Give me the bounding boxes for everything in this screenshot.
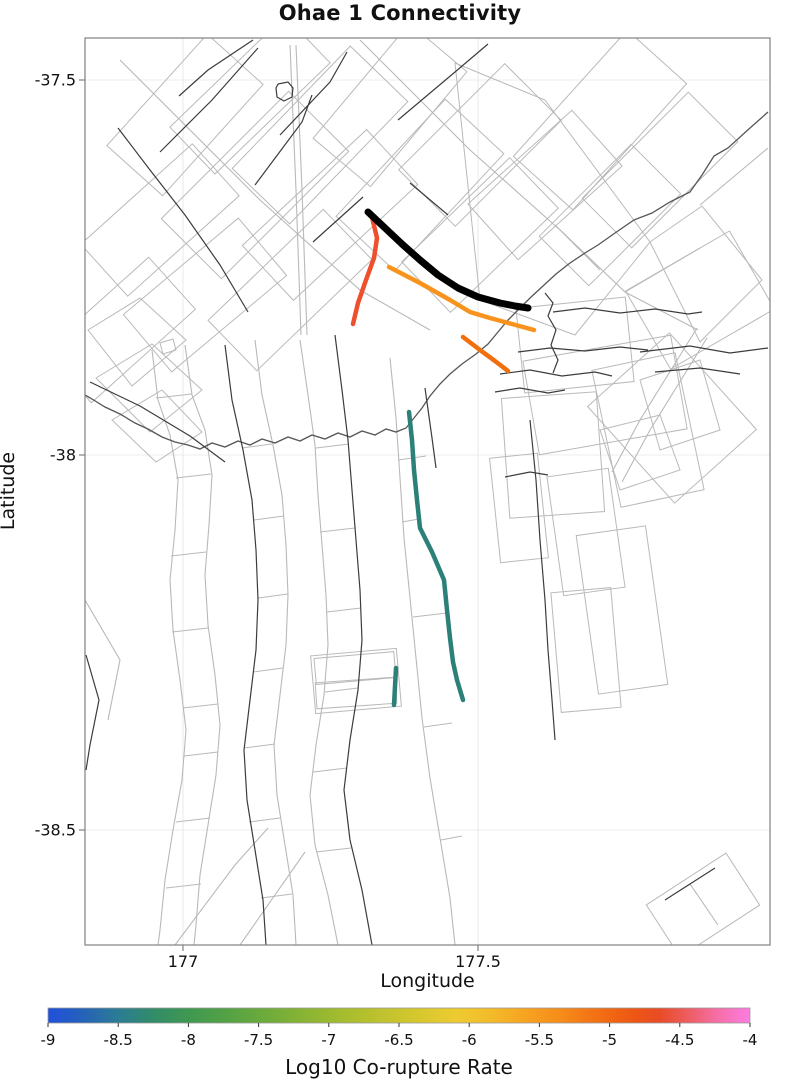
fault-segment-rung [253, 668, 283, 672]
fault-segment-rung [261, 894, 292, 898]
fault-segment-rung [172, 628, 208, 632]
fault-trace-orange-upper [389, 267, 534, 330]
fault-segment-rung [327, 608, 361, 612]
fault-trace-dark [553, 308, 702, 314]
fault-trace-teal-short [394, 668, 396, 705]
fault-surface-outline [208, 209, 372, 370]
fault-trace-light [700, 148, 768, 205]
fault-segment-rung [325, 688, 358, 692]
fault-segment-rung [316, 848, 351, 852]
fault-trace-red [353, 213, 377, 324]
fault-trace-light [390, 358, 455, 945]
colorbar [48, 1008, 750, 1023]
fault-surface-outline [547, 468, 625, 595]
colorbar-label: Log10 Co-rupture Rate [48, 1055, 750, 1079]
fault-trace-dark [276, 82, 293, 101]
fault-trace-dark [410, 183, 448, 215]
fault-surface-outline [646, 853, 759, 957]
fault-trace-light [85, 600, 120, 720]
colorbar-tick-label: -6.5 [384, 1031, 413, 1049]
fault-segment-rung [254, 516, 284, 520]
fault-segment-rung [171, 552, 206, 556]
colorbar-tick-label: -9 [41, 1031, 56, 1049]
fault-segment-rung [258, 594, 288, 598]
fault-surface-outline [588, 333, 757, 503]
fault-segment-rung [244, 744, 275, 748]
colorbar-tick-label: -4 [743, 1031, 758, 1049]
fault-surface-outline [242, 130, 417, 301]
fault-background-group [45, 16, 775, 957]
x-tick-label: 177.5 [455, 952, 501, 971]
x-tick-label: 177 [168, 952, 199, 971]
colorbar-tick-label: -8.5 [104, 1031, 133, 1049]
fault-surface-outline [88, 298, 186, 386]
fault-segment-rung [441, 836, 462, 840]
figure: Ohae 1 Connectivity Latitude 177177.5-37… [0, 0, 800, 1091]
fault-segment-rung [156, 394, 192, 398]
fault-segment-rung [176, 818, 210, 822]
fault-trace-dark [86, 655, 99, 770]
highlighted-faults-group [353, 212, 534, 705]
fault-segment-rung [316, 444, 349, 448]
colorbar-tick-label: -5 [602, 1031, 617, 1049]
fault-surface-outline [107, 34, 263, 196]
map-canvas: 177177.5-37.5-38-38.5-9-8.5-8-7.5-7-6.5-… [0, 0, 800, 1091]
fault-trace-light [555, 225, 698, 330]
fault-segment-rung [242, 444, 272, 448]
fault-surface-outline [490, 453, 549, 562]
fault-surface-outline [313, 23, 467, 186]
fault-trace-dark [179, 40, 253, 96]
fault-surface-outline [160, 339, 176, 354]
colorbar-tick-label: -4.5 [665, 1031, 694, 1049]
fault-surface-outline [600, 415, 680, 490]
fault-trace-dark [655, 368, 740, 374]
plot-border [85, 38, 770, 945]
fault-surface-outline [45, 257, 196, 403]
fault-trace-light [690, 884, 718, 925]
fault-trace-dark [225, 345, 266, 945]
fault-trace-light [185, 345, 220, 945]
fault-segment-rung [313, 768, 347, 772]
y-tick-label: -37.5 [35, 71, 76, 90]
fault-surface-outline [640, 360, 720, 450]
fault-trace-dark [335, 335, 372, 945]
fault-surface-outline [576, 526, 668, 694]
colorbar-tick-label: -7.5 [244, 1031, 273, 1049]
colorbar-tick-label: -8 [181, 1031, 196, 1049]
fault-surface-outline [650, 206, 762, 342]
fault-segment-rung [413, 613, 447, 617]
fault-surface-outline [539, 144, 680, 285]
fault-trace-dark [280, 52, 347, 135]
fault-trace-dark [313, 197, 363, 242]
fault-trace-dark [665, 868, 715, 900]
fault-trace-orange-lower [463, 337, 508, 371]
fault-surface-outline [399, 64, 562, 227]
fault-trace-dark [425, 388, 436, 468]
fault-segment-rung [184, 752, 218, 756]
colorbar-tick-label: -6 [462, 1031, 477, 1049]
y-tick-label: -38.5 [35, 821, 76, 840]
fault-trace-light [255, 340, 296, 945]
fault-segment-rung [402, 519, 419, 522]
fault-surface-outline [336, 99, 504, 271]
fault-trace-dark [518, 347, 648, 352]
fault-surface-outline [402, 158, 559, 313]
fault-trace-light [612, 328, 697, 472]
fault-segment-rung [424, 723, 452, 727]
colorbar-tick-label: -5.5 [525, 1031, 554, 1049]
fault-segment-rung [176, 474, 211, 478]
fault-trace-light [300, 340, 338, 945]
fault-trace-dark [505, 472, 548, 477]
x-axis-label: Longitude [85, 970, 770, 992]
fault-surface-outline [123, 218, 286, 372]
fault-trace-dark [530, 420, 555, 740]
fault-trace-light [120, 60, 430, 330]
fault-segment-rung [320, 528, 355, 532]
fault-trace-light [625, 248, 700, 292]
fault-trace-dark [500, 370, 612, 376]
fault-surface-outline [96, 344, 202, 432]
fault-segment-rung [183, 704, 218, 708]
fault-trace-dark [398, 44, 488, 120]
fault-trace-light [296, 45, 307, 335]
fault-trace-light [290, 45, 301, 335]
colorbar-tick-label: -7 [321, 1031, 336, 1049]
fault-segment-rung [249, 818, 280, 822]
y-tick-label: -38 [50, 446, 76, 465]
grid-group [85, 38, 770, 945]
fault-surface-outline [455, 63, 650, 335]
